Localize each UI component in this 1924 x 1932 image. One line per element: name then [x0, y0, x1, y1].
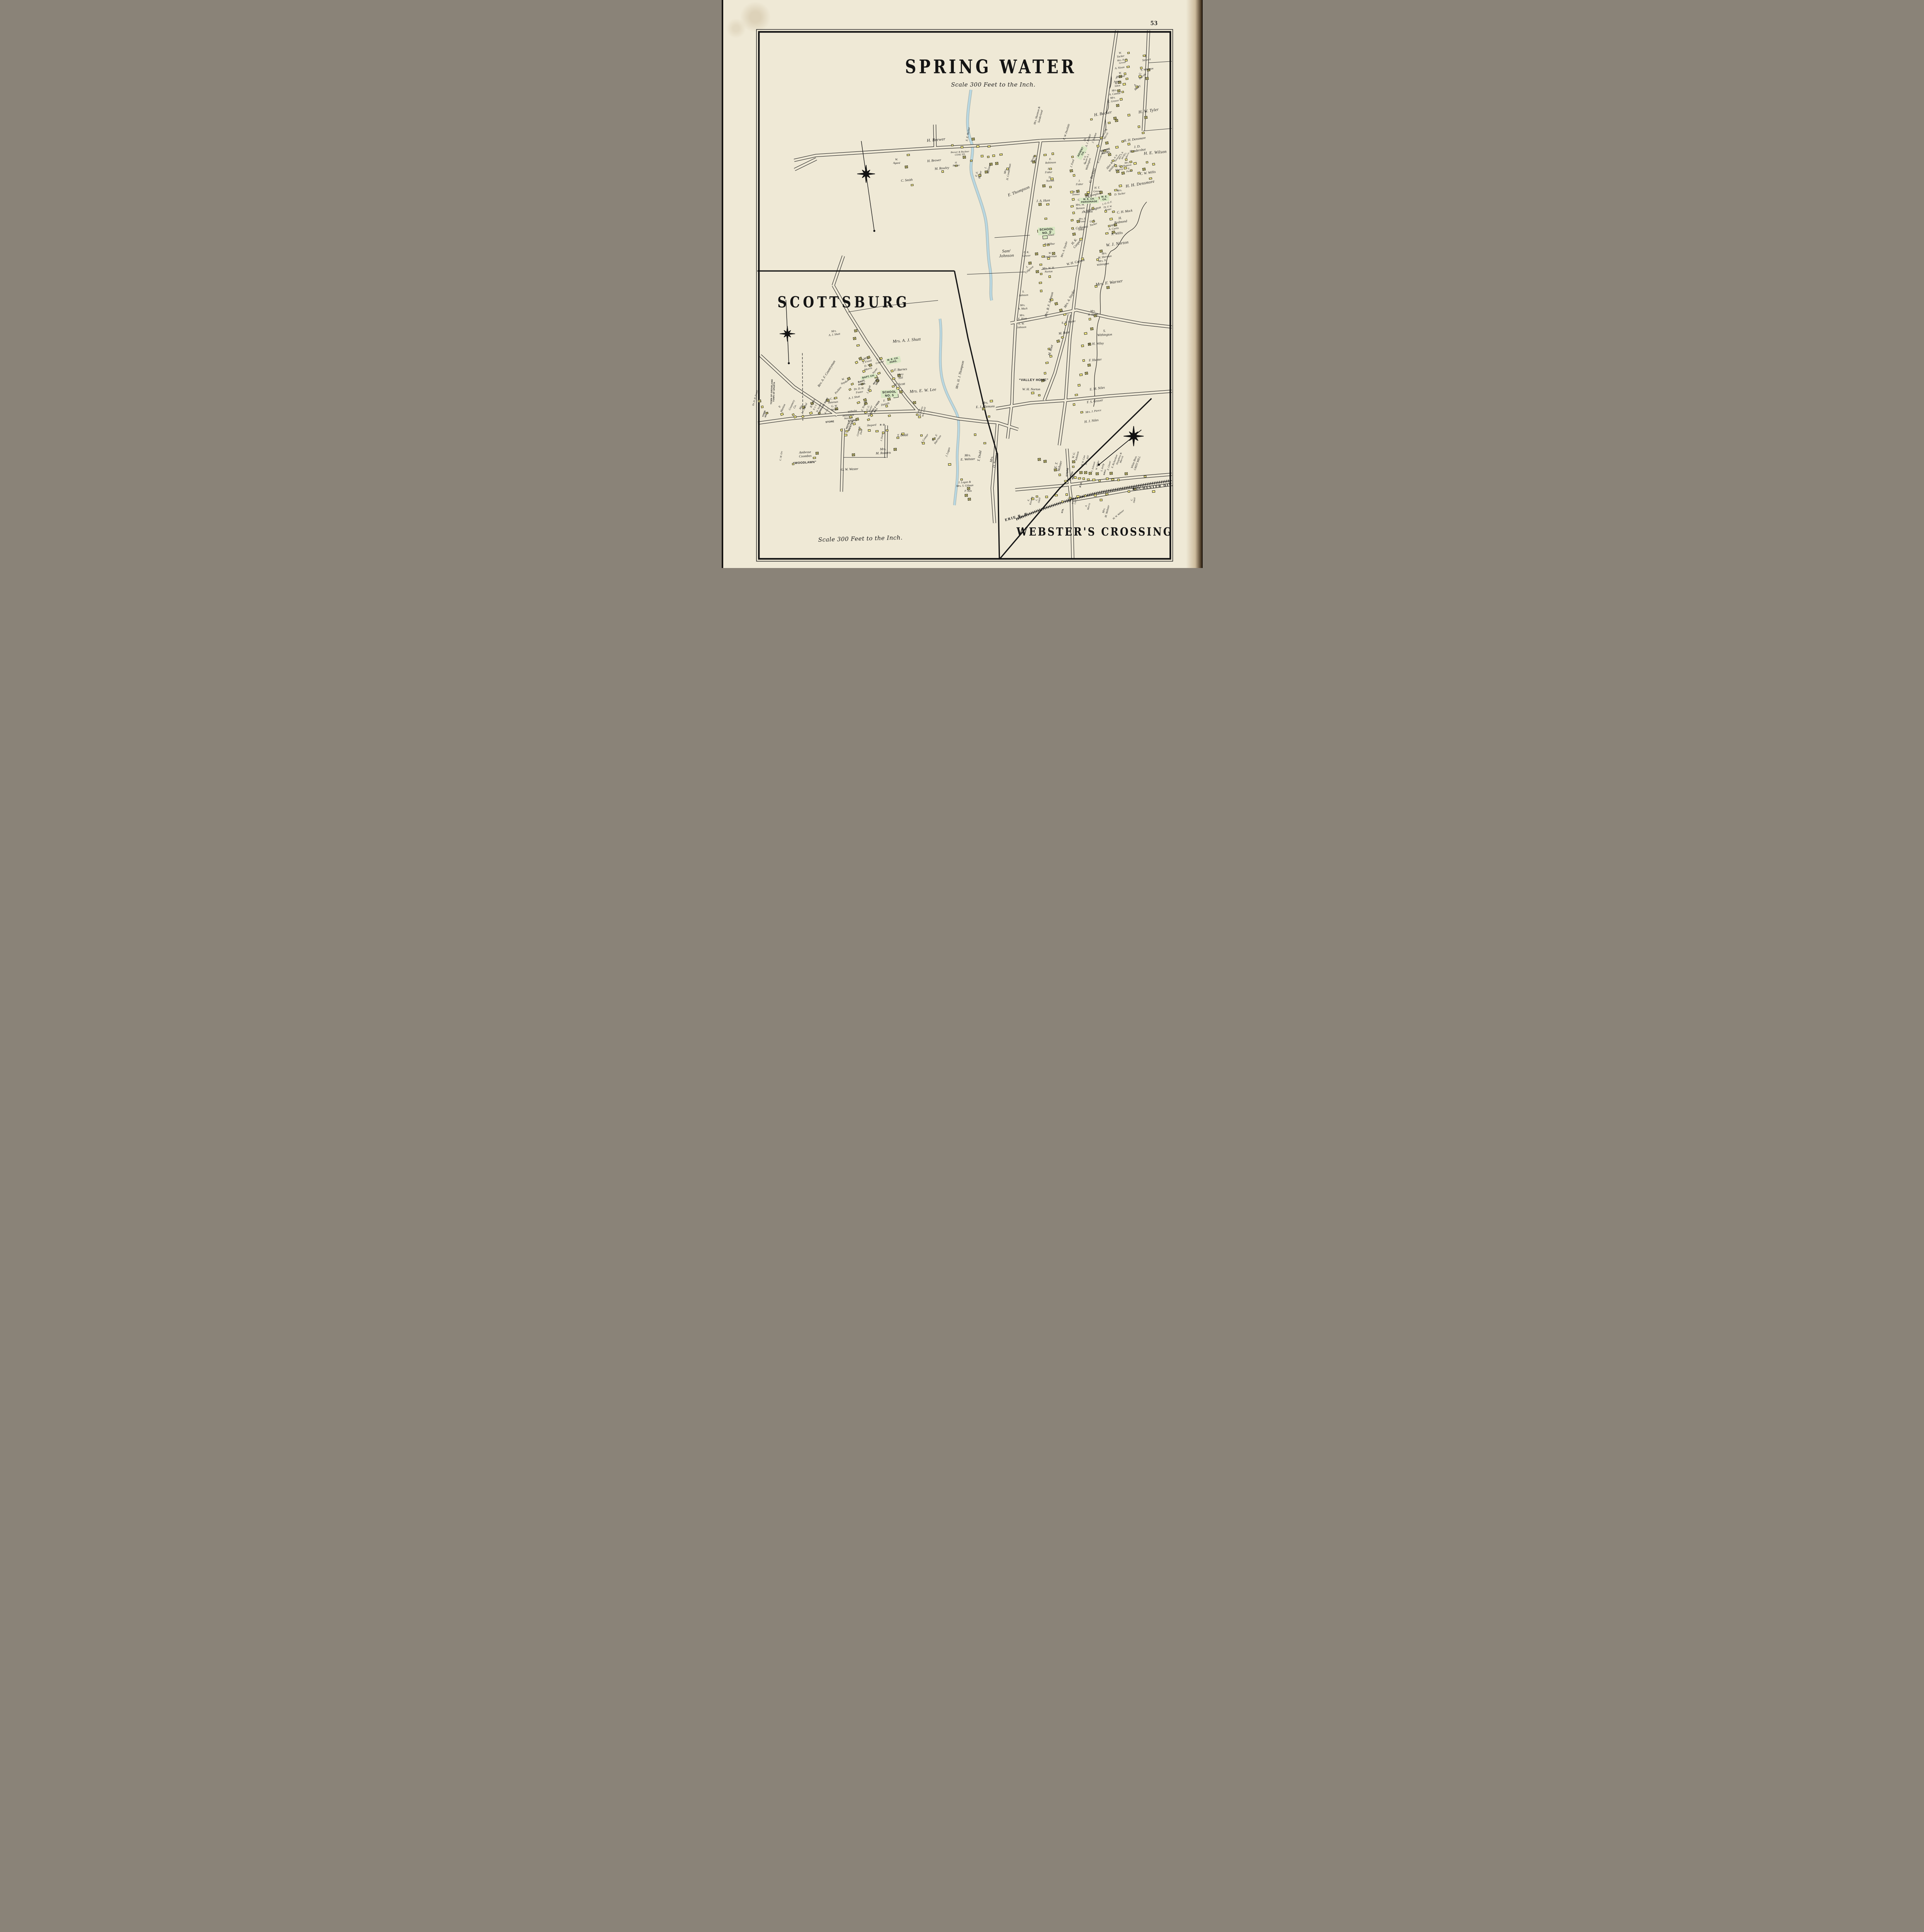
building-marker — [1144, 476, 1147, 478]
building-marker — [1117, 479, 1119, 481]
owner-label: HALL — [1103, 469, 1106, 475]
building-marker — [1055, 494, 1058, 496]
owner-label: A. Morris — [1084, 502, 1091, 510]
owner-label: J. Johnson — [1091, 461, 1096, 472]
outbuilding-marker — [1089, 472, 1092, 474]
owner-label: STORE — [1066, 468, 1069, 476]
owner-label: E. T. Webster — [1053, 459, 1063, 472]
outbuilding-marker — [1044, 460, 1047, 463]
building-marker — [1105, 493, 1108, 495]
page-number: 53 — [1151, 19, 1158, 27]
outbuilding-marker — [1038, 458, 1041, 461]
owner-label: ERIE R. R. — [1004, 512, 1030, 522]
owner-label: E. Knowles — [1026, 496, 1033, 505]
building-marker — [1045, 496, 1048, 498]
building-marker — [1061, 500, 1064, 502]
building-marker — [1084, 495, 1086, 497]
building-marker — [1083, 478, 1085, 480]
outbuilding-marker — [1124, 472, 1127, 475]
owner-label: M. W. Webster — [1112, 509, 1125, 520]
spring-water-title: SPRING WATER — [905, 56, 1077, 78]
building-marker — [1058, 474, 1061, 476]
outbuilding-marker — [1072, 460, 1075, 463]
owner-label: H. C. Hill — [1067, 498, 1072, 503]
owner-label: W. G. Johnson — [1071, 450, 1079, 461]
atlas-plate: H. BrewerW. AgardC. SmithH. BrewerM. Row… — [722, 0, 1203, 568]
building-marker — [1152, 490, 1155, 492]
book-page-edge — [1186, 0, 1202, 568]
owner-label: E. Glover — [1107, 461, 1112, 471]
outbuilding-marker — [1084, 471, 1087, 474]
building-marker — [1087, 478, 1090, 480]
building-marker — [1092, 479, 1095, 481]
owner-label: C. Odell — [1130, 497, 1136, 503]
building-marker — [1111, 478, 1114, 480]
building-marker — [1128, 490, 1130, 492]
owner-label: STA. — [1061, 508, 1065, 514]
scottsburg-title: SCOTTSBURG — [777, 293, 910, 311]
building-marker — [1098, 480, 1101, 481]
owner-label: C. Odell — [1035, 497, 1041, 503]
owner-label: Humphrey & Marvin — [1115, 452, 1125, 466]
building-marker — [1076, 495, 1079, 498]
building-marker — [1078, 477, 1081, 479]
owner-label: P. O. — [1079, 481, 1083, 488]
spring-water-scale-note: Scale 300 Feet to the Inch. — [951, 81, 1036, 88]
building-marker — [1064, 480, 1067, 482]
outbuilding-marker — [1110, 472, 1113, 474]
building-marker — [1100, 498, 1102, 501]
building-marker — [1094, 494, 1096, 497]
owner-label: Mrs. M. Webster — [1100, 503, 1110, 517]
building-marker — [1072, 466, 1074, 468]
building-marker — [1066, 493, 1068, 496]
websters-crossing-title: WEBSTER'S CROSSING — [1016, 525, 1173, 538]
book-gutter-edge — [722, 0, 723, 568]
owner-label: White Bros. GRIST MILL — [1130, 454, 1141, 471]
building-marker — [1106, 478, 1108, 480]
owner-label: W. H. Case — [1072, 499, 1077, 505]
outbuilding-marker — [1096, 472, 1099, 475]
outbuilding-marker — [1079, 471, 1082, 474]
